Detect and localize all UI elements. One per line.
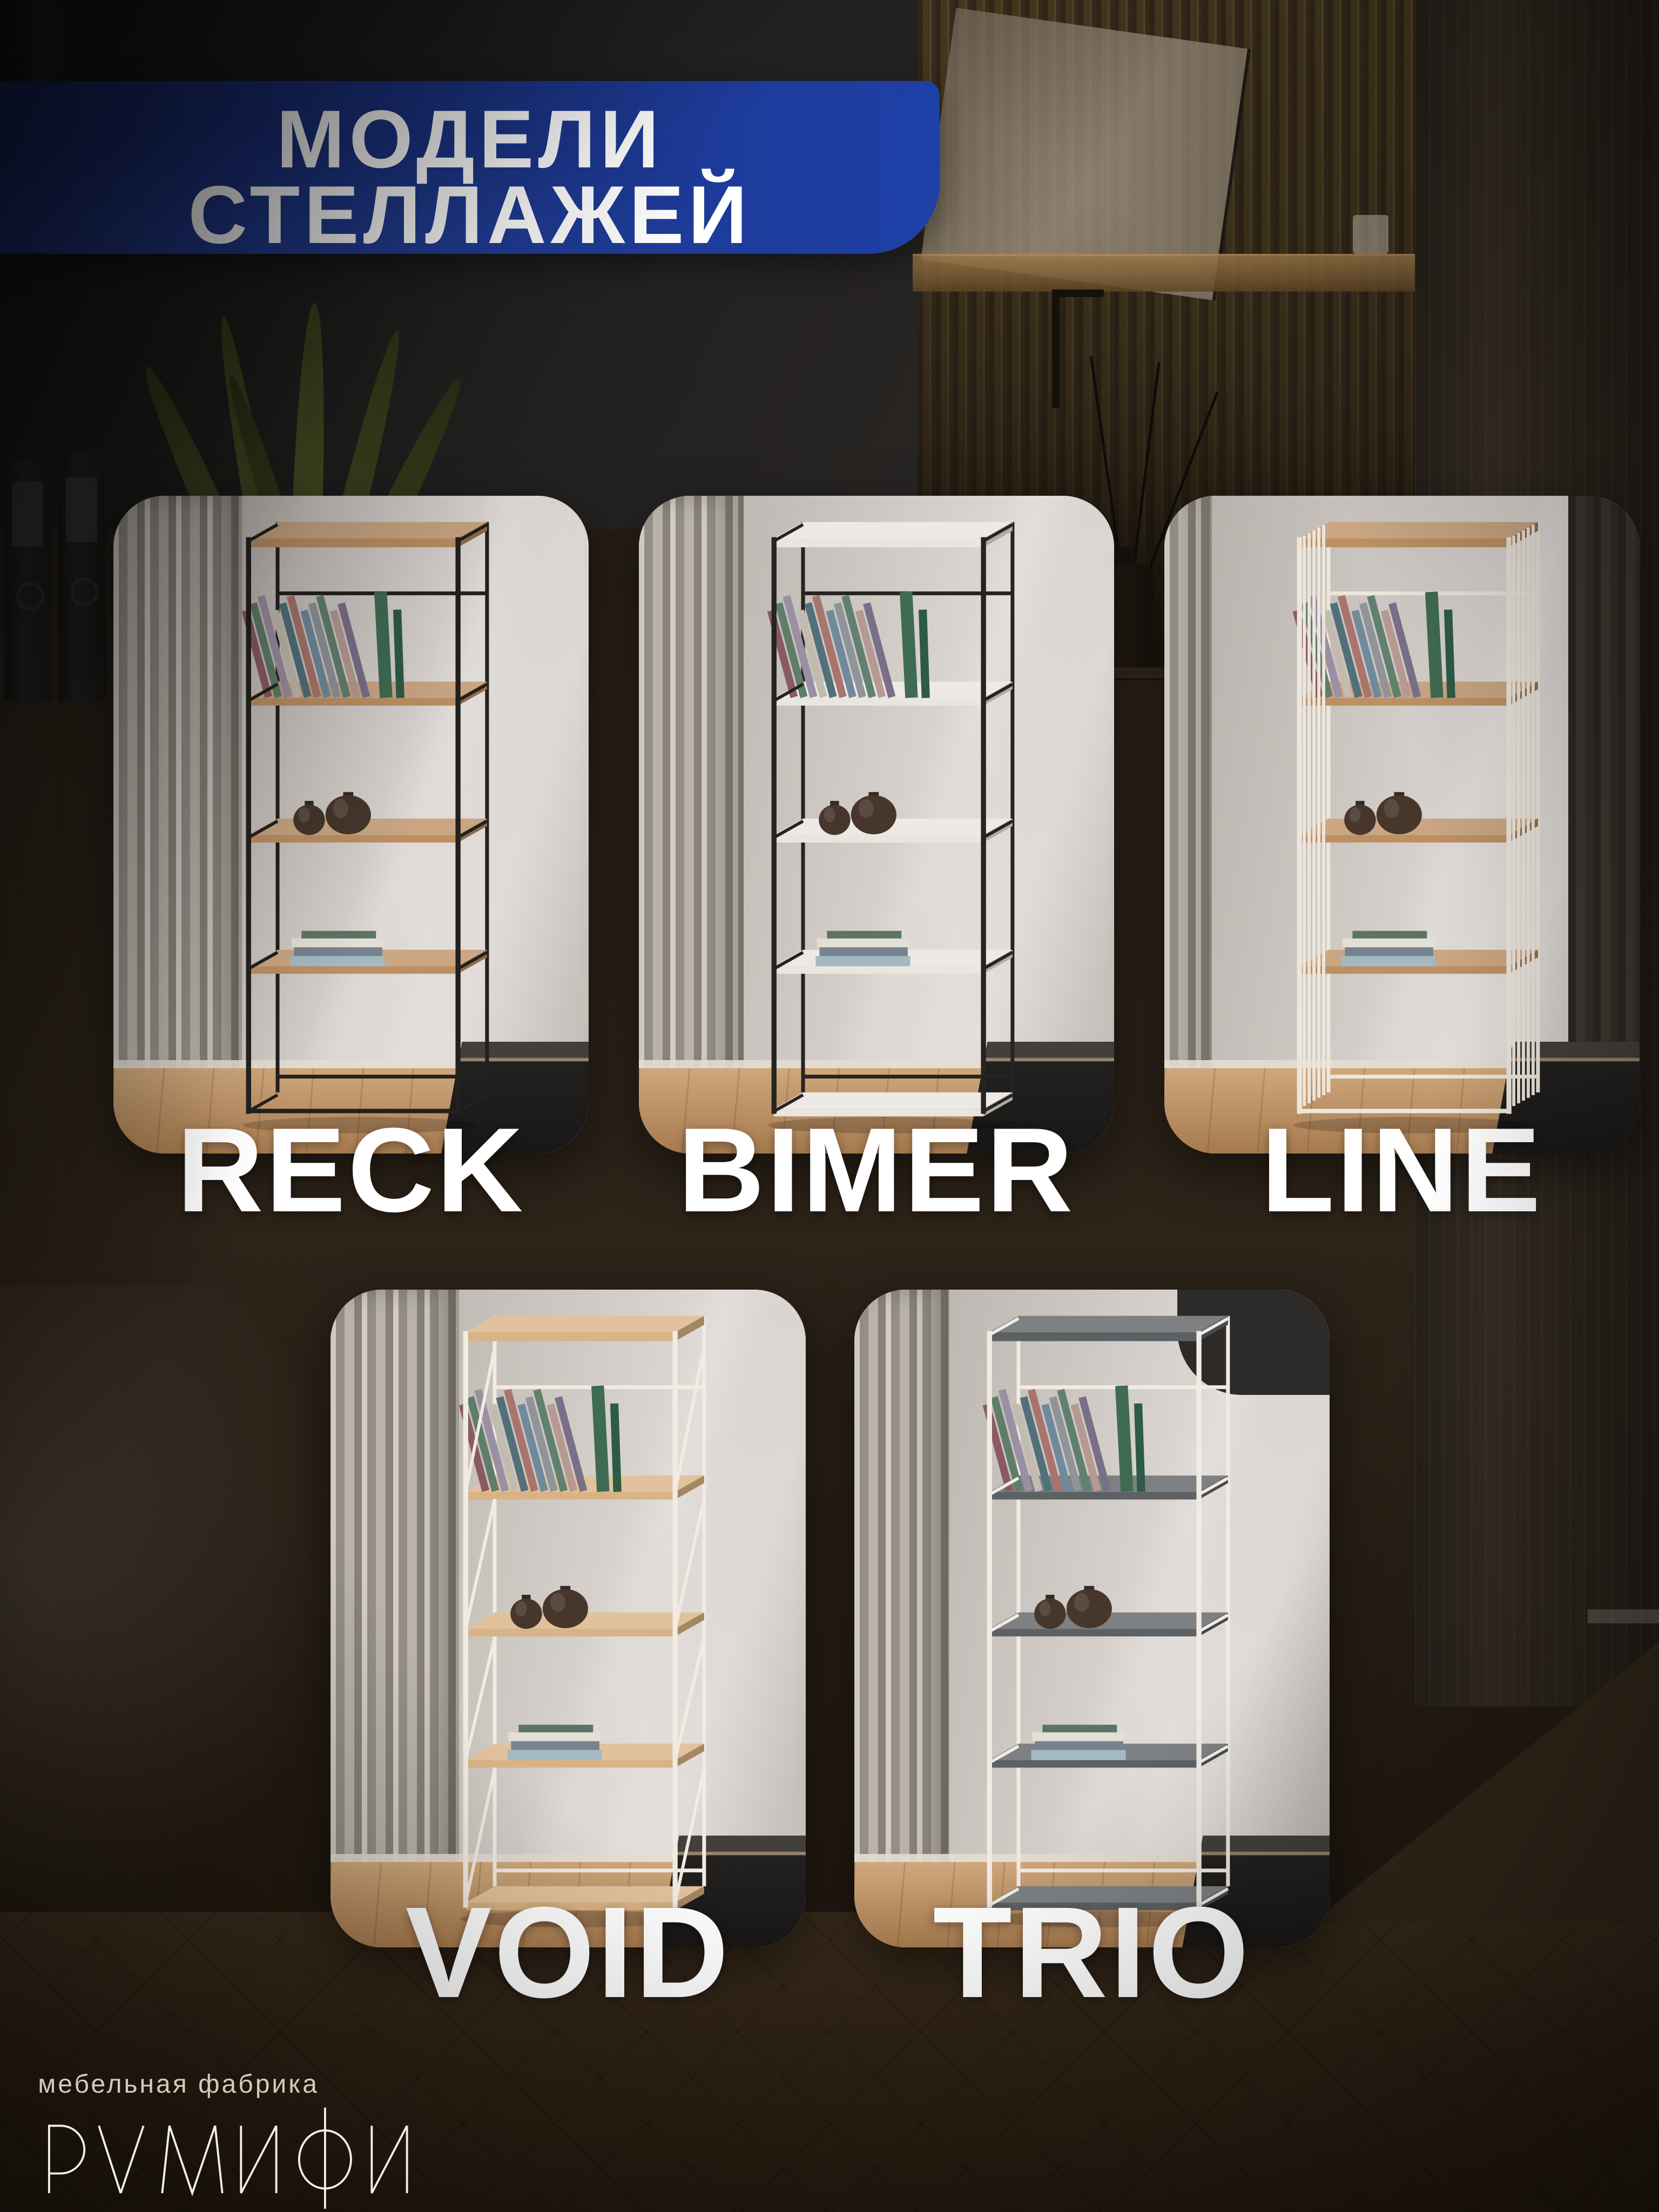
letter-I-cyr xyxy=(372,2126,407,2193)
letter-R-cyr xyxy=(49,2126,84,2193)
letter-U-cyr xyxy=(99,2126,144,2193)
brand-tagline: мебельная фабрика xyxy=(35,2069,319,2099)
poster: МОДЕЛИ СТЕЛЛАЖЕЙ RECKBIMERLINEVOIDTRIO м… xyxy=(0,0,1659,2212)
letter-I-cyr xyxy=(241,2126,276,2193)
brand-logo xyxy=(35,2100,429,2211)
letter-M-cyr xyxy=(162,2126,222,2193)
vignette xyxy=(0,0,1659,2212)
